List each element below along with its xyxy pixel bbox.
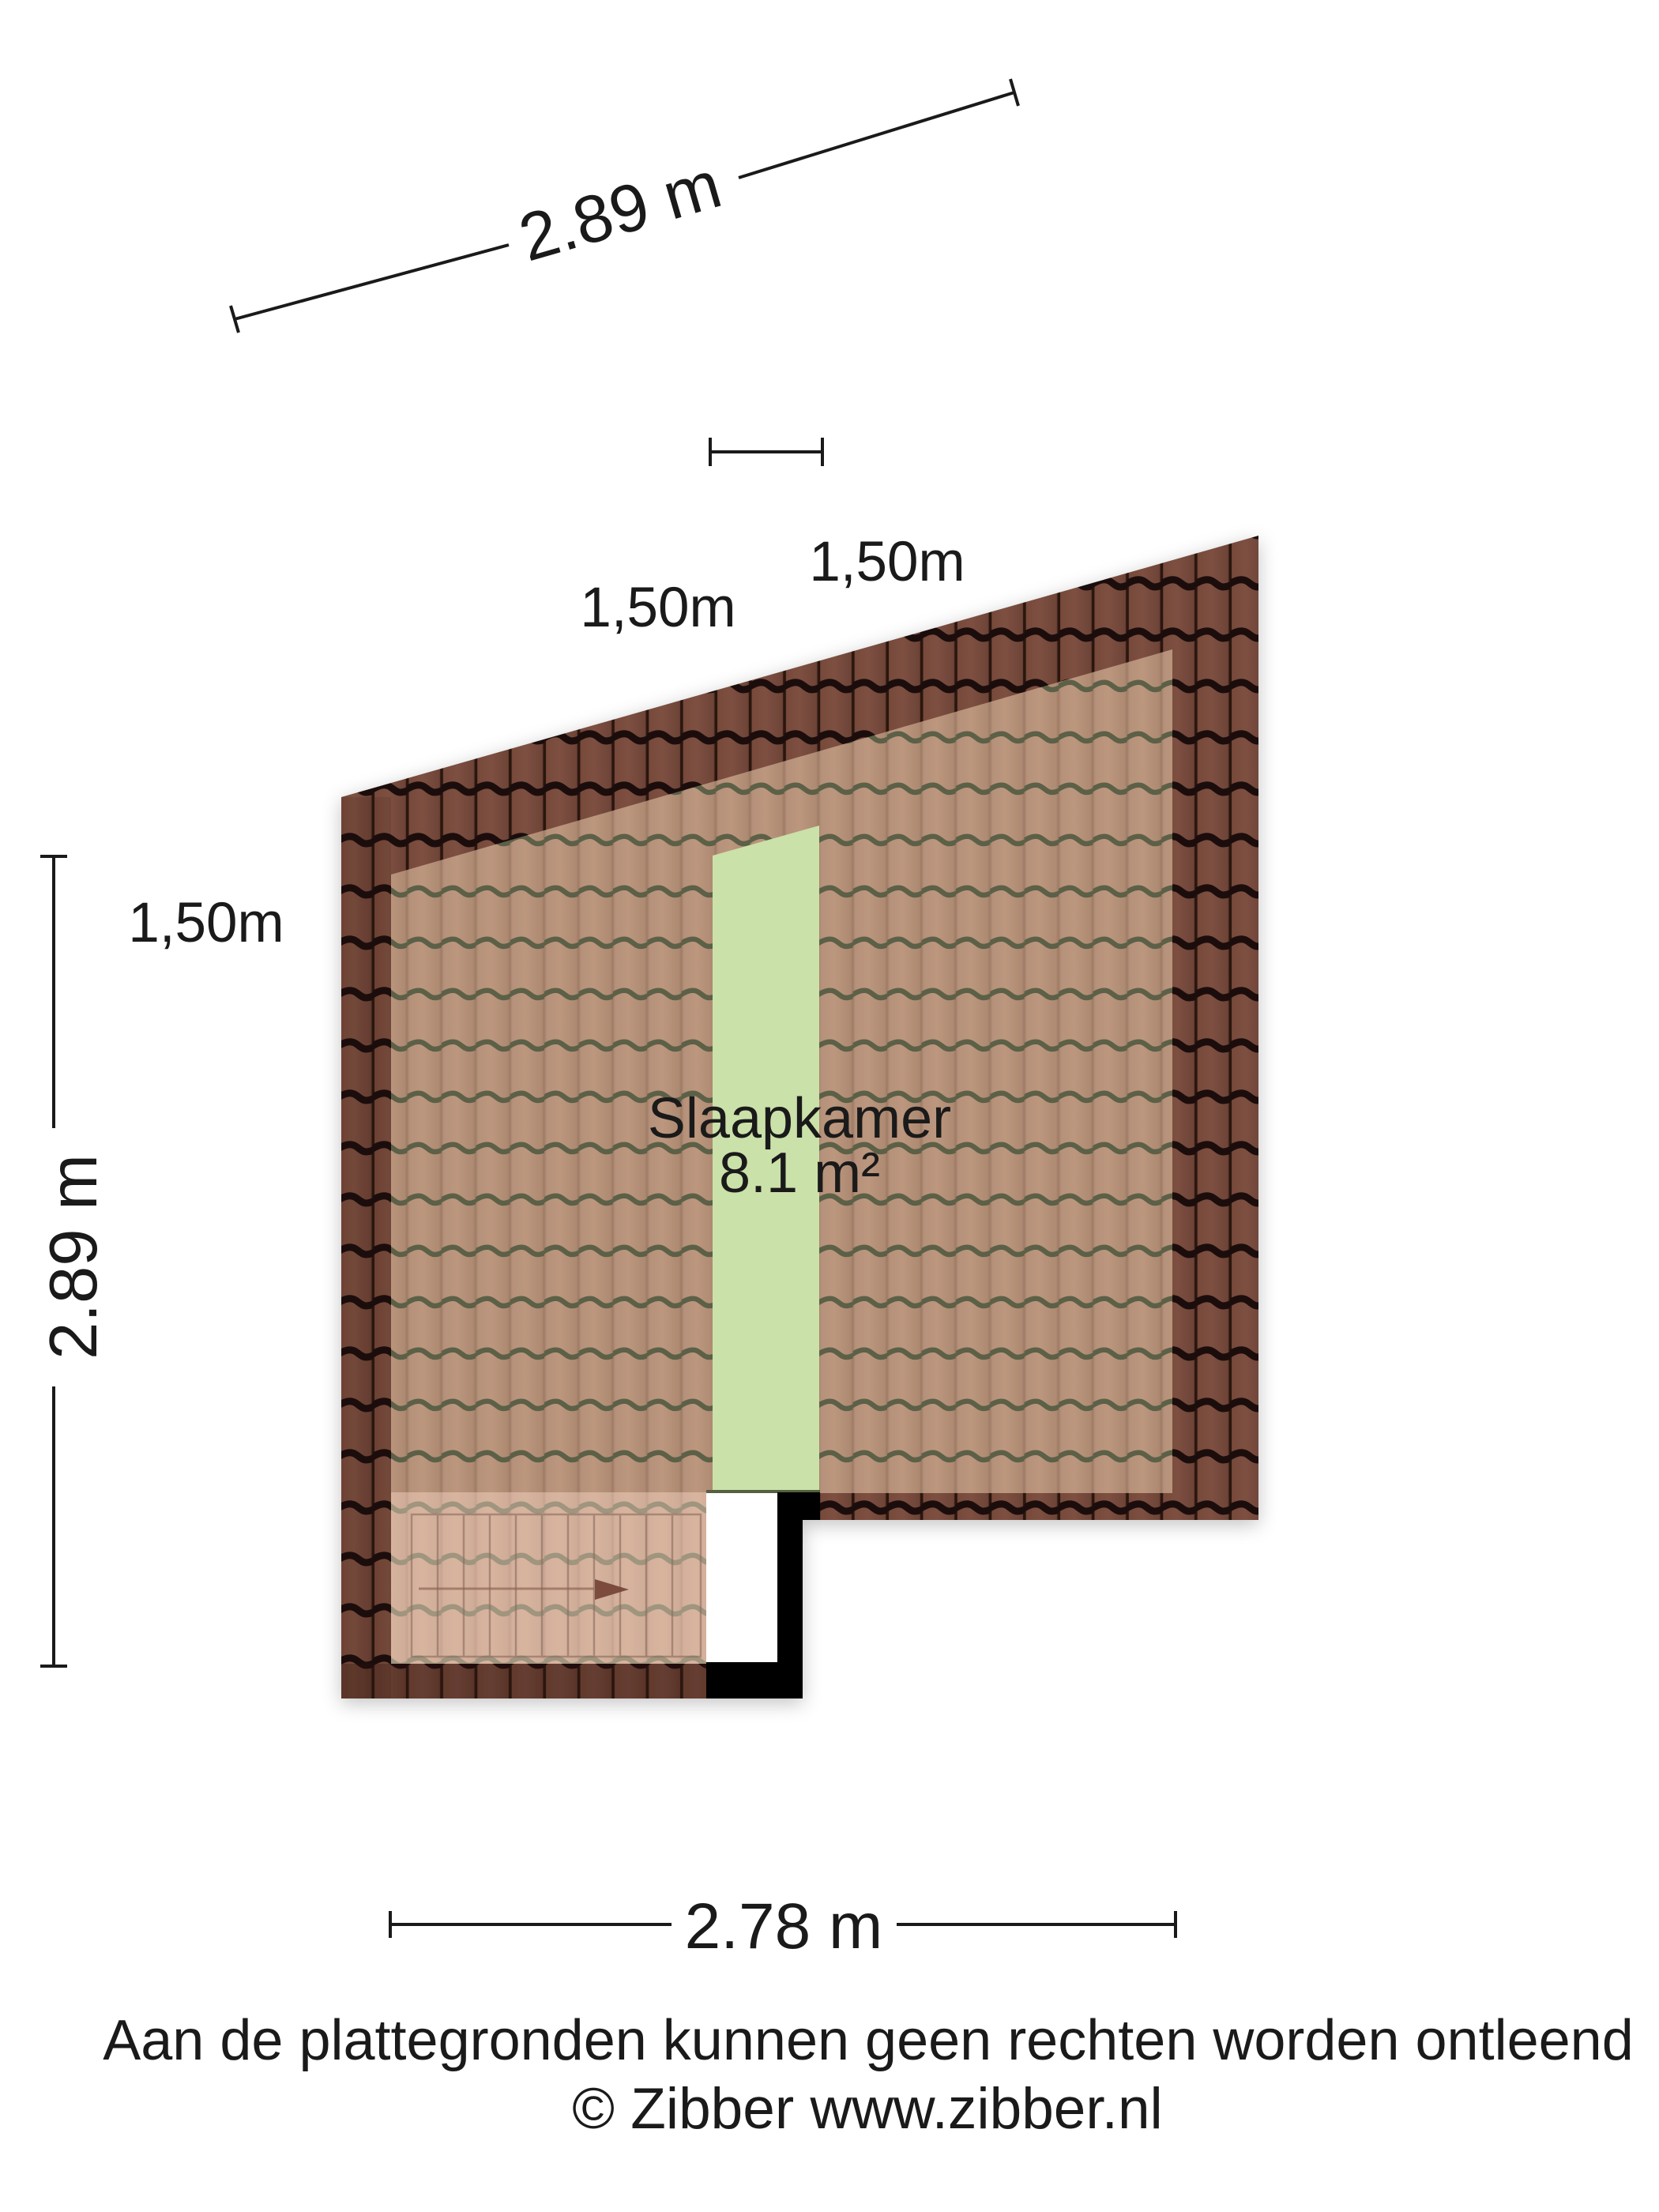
svg-text:Aan de plattegronden kunnen ge: Aan de plattegronden kunnen geen rechten… [103,2009,1634,2072]
svg-text:1,50m: 1,50m [580,577,735,639]
svg-text:Slaapkamer: Slaapkamer [648,1087,951,1150]
svg-text:8.1 m²: 8.1 m² [719,1142,880,1205]
svg-text:1,50m: 1,50m [128,892,284,954]
svg-text:2.89 m: 2.89 m [36,1154,111,1360]
svg-text:2.89 m: 2.89 m [511,147,729,276]
svg-text:2.78 m: 2.78 m [685,1890,883,1962]
svg-text:1,50m: 1,50m [809,531,965,593]
svg-text:© Zibber www.zibber.nl: © Zibber www.zibber.nl [572,2077,1163,2141]
